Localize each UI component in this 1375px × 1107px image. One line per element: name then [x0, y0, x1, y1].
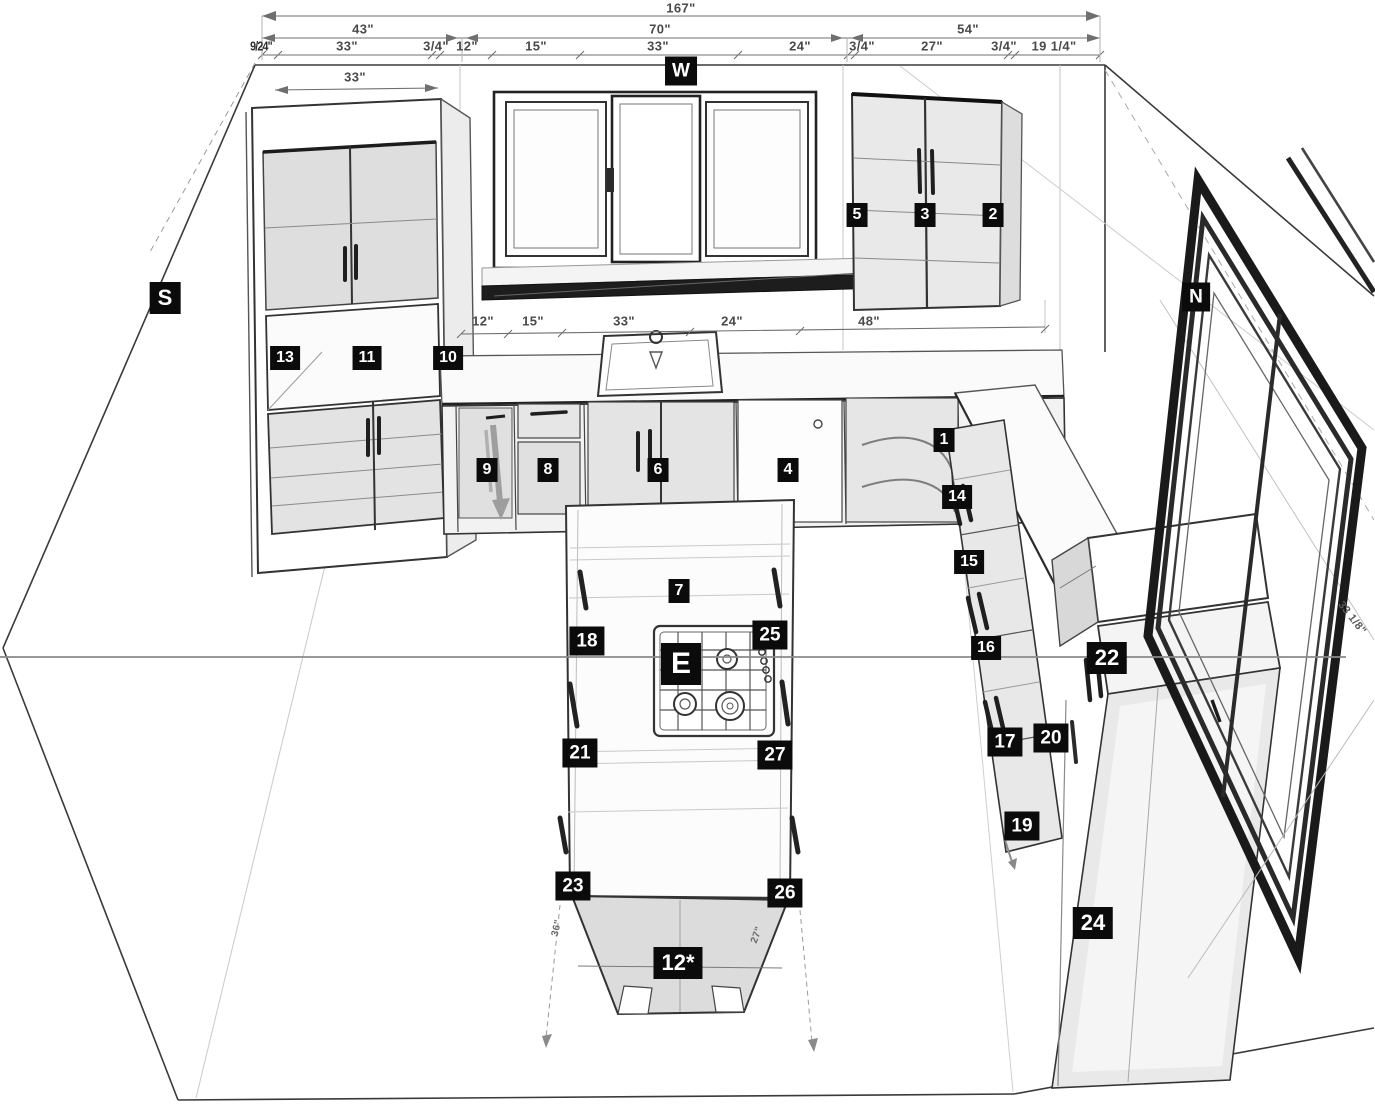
- dim-54: 54": [957, 22, 979, 37]
- tag-23: 23: [555, 872, 590, 901]
- dim-win-12: 12": [472, 314, 494, 329]
- tag-14: 14: [942, 485, 972, 509]
- compass-east: E: [661, 643, 701, 685]
- dim-24a: 24": [789, 39, 811, 54]
- tag-5: 5: [847, 203, 868, 227]
- dim-33a: 33": [336, 39, 358, 54]
- tag-10: 10: [433, 346, 463, 370]
- window-handle: [607, 168, 614, 192]
- tag-4: 4: [778, 458, 799, 482]
- tag-8: 8: [538, 458, 559, 482]
- tag-7: 7: [669, 579, 690, 603]
- tag-19: 19: [1004, 812, 1039, 841]
- tag-15: 15: [954, 550, 984, 574]
- dim-70: 70": [649, 22, 671, 37]
- dim-12a: 12": [456, 39, 478, 54]
- tag-11: 11: [353, 346, 382, 370]
- dim-34c: 3/4": [991, 39, 1017, 54]
- kitchen-plan-screenshot: 167" 43" 70" 54" 9/24" 33" 3/4" 12" 15" …: [0, 0, 1375, 1107]
- dim-34b: 3/4": [849, 39, 875, 54]
- tag-26: 26: [767, 879, 802, 908]
- tag-13: 13: [270, 346, 300, 370]
- dim-win-24: 24": [721, 314, 743, 329]
- kitchen-3d-render: [0, 0, 1375, 1107]
- upper-cabinet-right: [852, 94, 1022, 310]
- tag-24: 24: [1073, 907, 1113, 939]
- dim-win-15: 15": [522, 314, 544, 329]
- dim-34a: 3/4": [423, 39, 449, 54]
- tag-22: 22: [1087, 642, 1127, 674]
- tag-21: 21: [562, 739, 597, 768]
- tag-16: 16: [971, 636, 1001, 660]
- tag-20: 20: [1033, 724, 1068, 753]
- dim-overall: 167": [666, 1, 695, 16]
- tag-3: 3: [915, 203, 936, 227]
- double-door-base: [588, 402, 734, 512]
- tag-6: 6: [648, 458, 669, 482]
- tag-27: 27: [757, 741, 792, 770]
- tall-pantry-cabinet: [246, 99, 476, 577]
- tag-1: 1: [934, 428, 955, 452]
- dim-33b: 33": [647, 39, 669, 54]
- tag-2: 2: [983, 203, 1004, 227]
- compass-west: W: [665, 57, 697, 86]
- dim-garbled: 9/24": [250, 39, 272, 54]
- dim-cabinet-33: 33": [344, 70, 366, 85]
- sink: [598, 331, 722, 396]
- compass-south: S: [150, 282, 181, 314]
- tag-25: 25: [752, 621, 787, 650]
- dim-15a: 15": [525, 39, 547, 54]
- compass-north: N: [1182, 283, 1210, 312]
- dim-27a: 27": [921, 39, 943, 54]
- tag-17: 17: [987, 728, 1022, 757]
- tag-12: 12*: [653, 947, 702, 979]
- dim-43: 43": [352, 22, 374, 37]
- tag-9: 9: [477, 458, 498, 482]
- dim-19q: 19 1/4": [1031, 39, 1076, 54]
- tag-18: 18: [569, 627, 604, 656]
- dim-win-48: 48": [858, 314, 880, 329]
- dim-win-33: 33": [613, 314, 635, 329]
